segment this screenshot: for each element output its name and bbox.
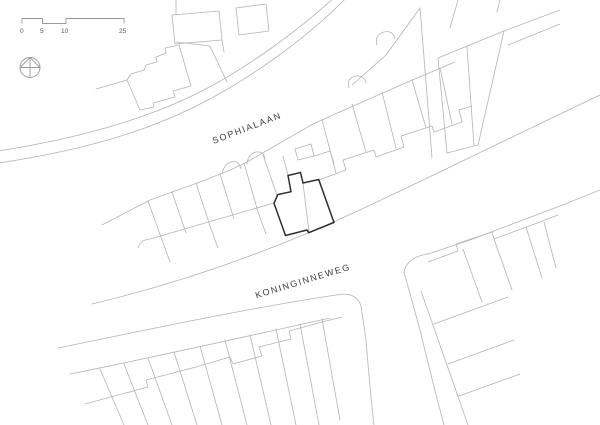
outbuilding-outline [236,4,269,35]
scalebar-tick-label: 5 [40,28,44,35]
site-plan-page: 0 5 10 25 [0,0,600,425]
south-terraced-row [70,317,342,425]
villa-outline [127,45,191,110]
outbuilding-outline [172,11,222,44]
middle-terraced-row [102,62,472,262]
plot-outline [438,31,504,153]
street-sophialaan-curbs [0,0,350,164]
site-plan-drawing: 0 5 10 25 [0,0,600,425]
subject-building-outline [274,173,334,236]
southeast-building-block [421,215,558,425]
scalebar-tick-label: 10 [61,28,69,35]
north-arrow-icon [20,58,40,78]
scale-bar: 0 5 10 25 [20,19,127,36]
scalebar-tick-label: 0 [20,28,24,35]
northwest-building-block [96,0,269,110]
scale-bar-line [22,19,124,24]
scalebar-tick-label: 25 [119,28,127,35]
street-koninginneweg-curbs [58,95,600,425]
northeast-building-block [348,0,560,158]
street-label-sophialaan: SOPHIALAAN [211,110,283,146]
